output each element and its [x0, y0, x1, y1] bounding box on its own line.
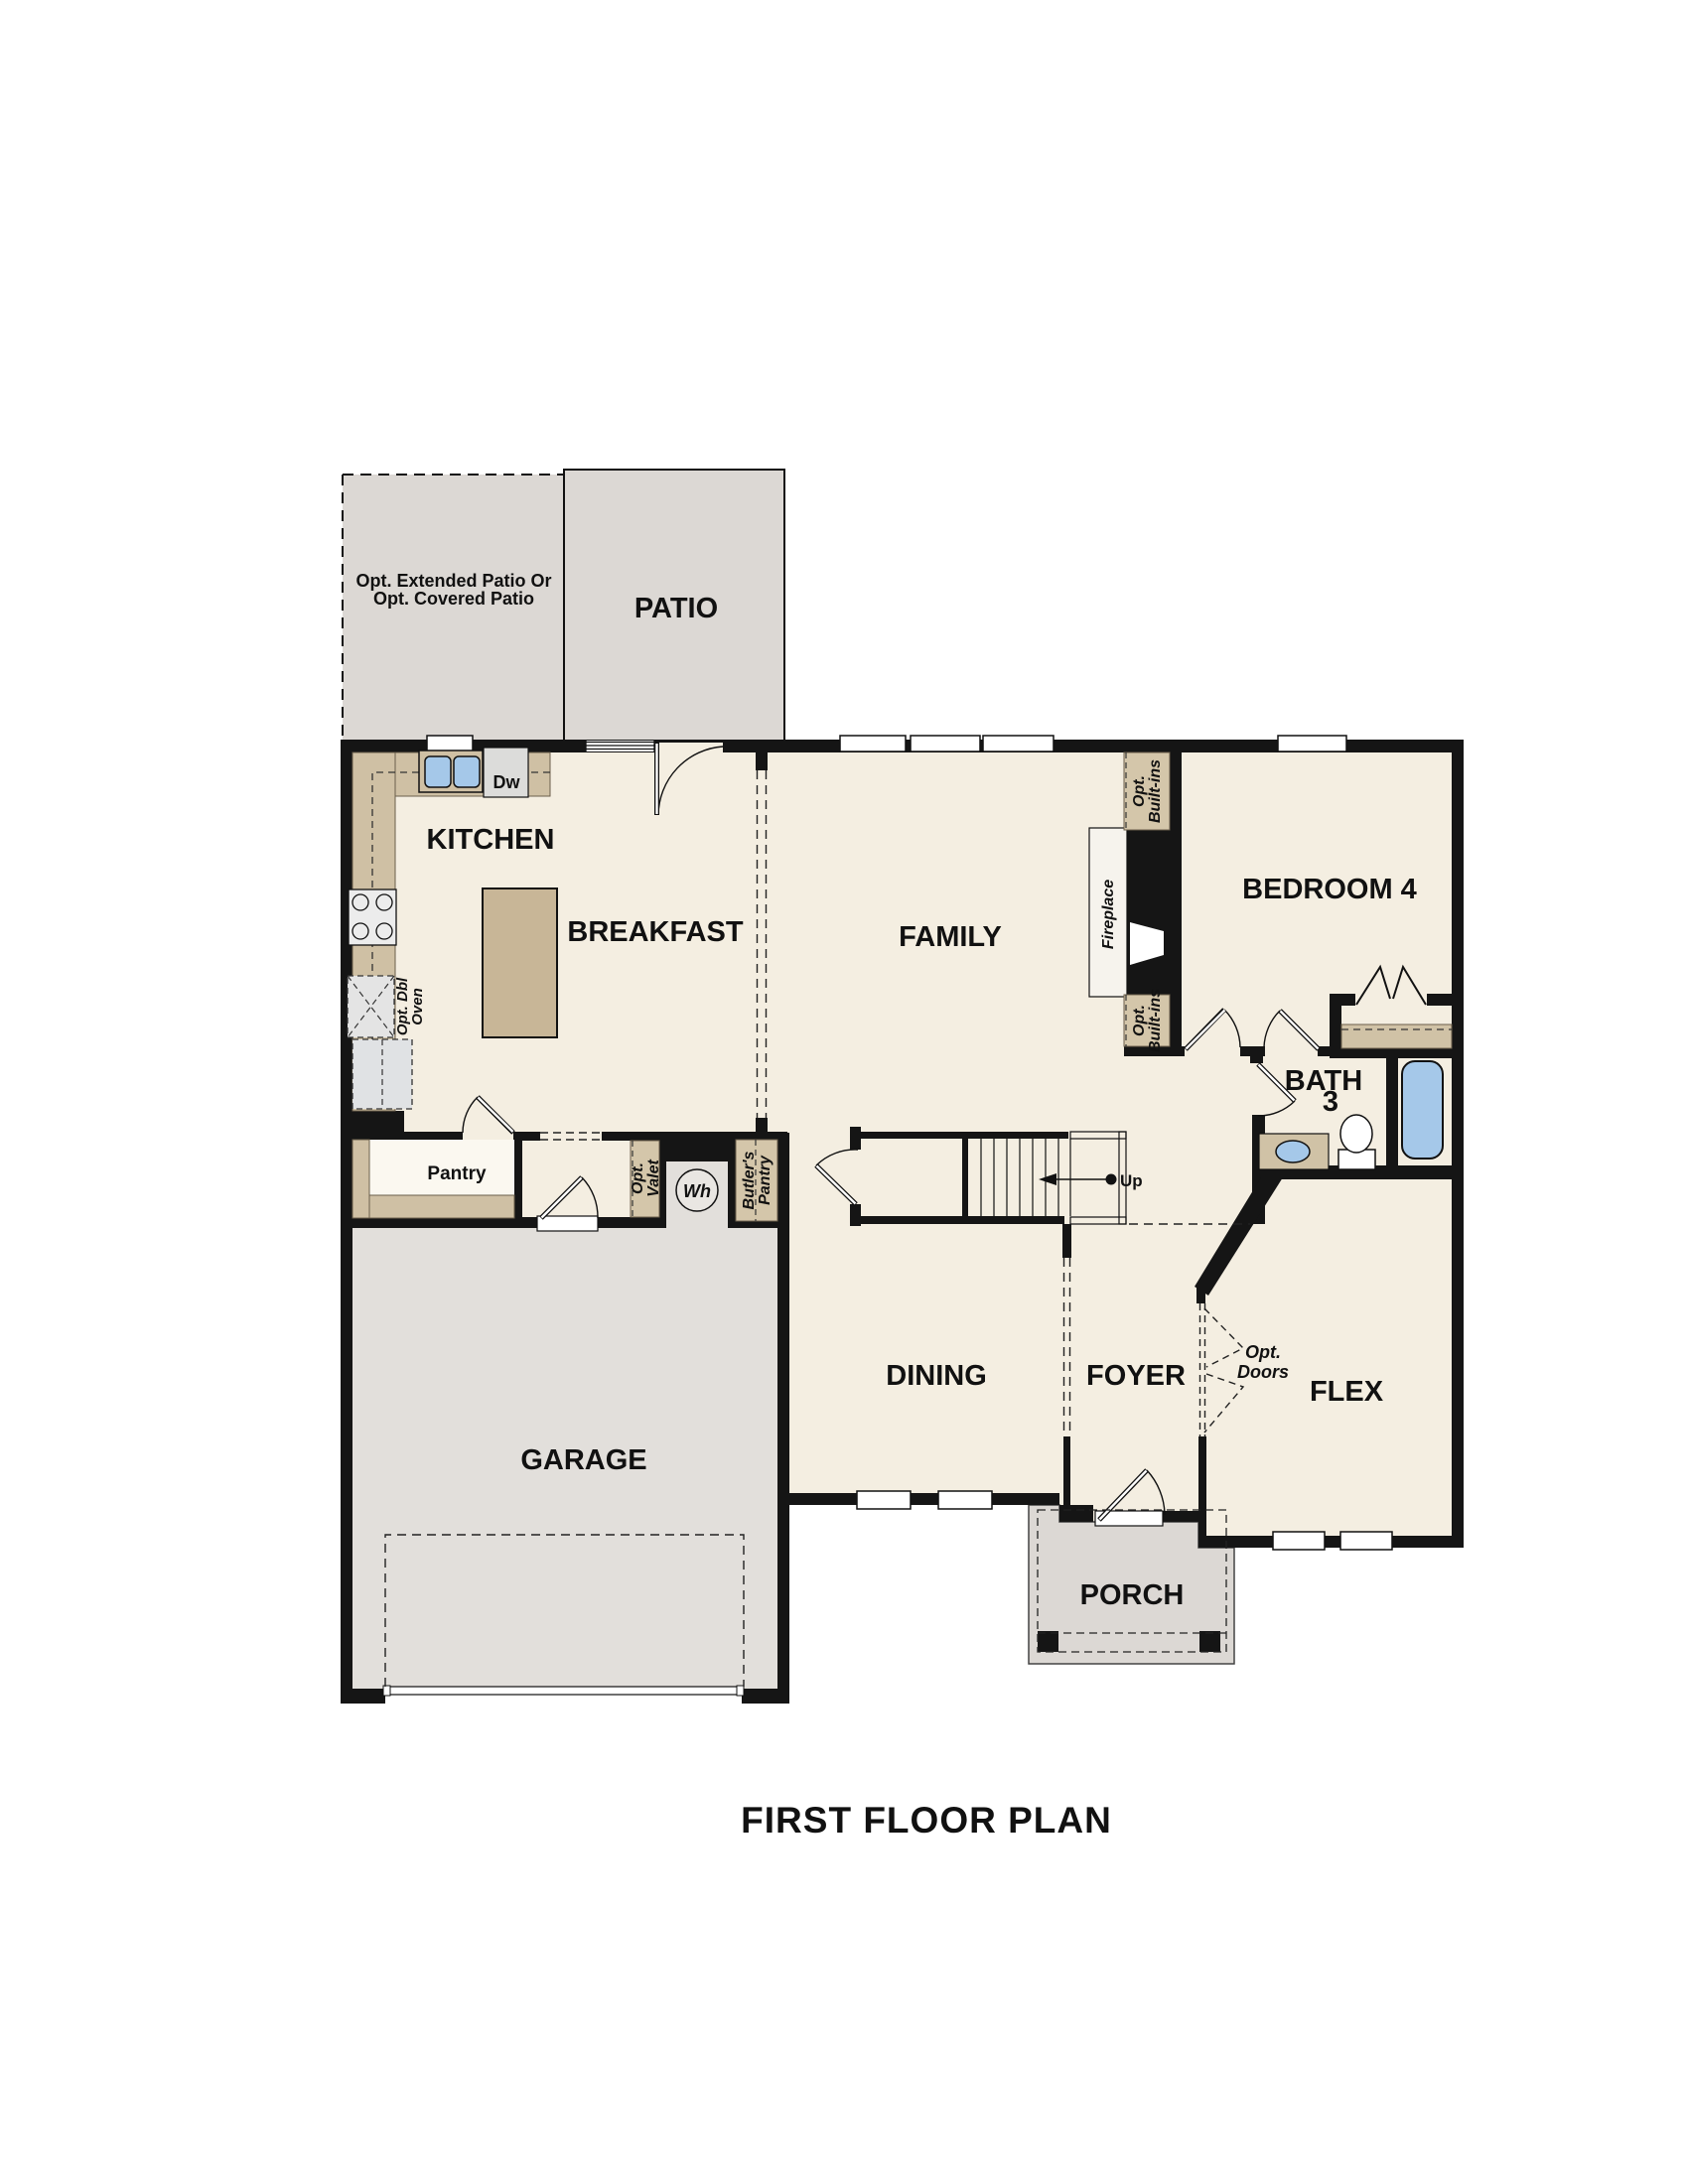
svg-text:BEDROOM 4: BEDROOM 4 — [1242, 874, 1417, 905]
svg-text:Dw: Dw — [493, 772, 521, 792]
svg-text:FLEX: FLEX — [1310, 1376, 1384, 1408]
svg-text:PATIO: PATIO — [634, 593, 718, 624]
svg-text:Opt. Extended Patio Or: Opt. Extended Patio Or — [355, 571, 551, 591]
svg-text:Pantry: Pantry — [427, 1163, 487, 1184]
svg-text:PORCH: PORCH — [1080, 1579, 1185, 1611]
svg-text:3: 3 — [1323, 1086, 1338, 1118]
svg-text:Up: Up — [1120, 1171, 1143, 1190]
svg-text:FIRST FLOOR PLAN: FIRST FLOOR PLAN — [741, 1800, 1112, 1841]
svg-text:Wh: Wh — [683, 1181, 711, 1201]
svg-text:Opt.: Opt. — [1245, 1342, 1281, 1362]
svg-text:KITCHEN: KITCHEN — [427, 824, 555, 856]
svg-text:DINING: DINING — [886, 1360, 987, 1392]
svg-text:GARAGE: GARAGE — [520, 1444, 646, 1476]
svg-text:Opt. Covered Patio: Opt. Covered Patio — [373, 589, 534, 609]
svg-text:BREAKFAST: BREAKFAST — [567, 916, 744, 948]
svg-text:FAMILY: FAMILY — [899, 921, 1002, 953]
svg-text:Doors: Doors — [1237, 1362, 1289, 1382]
svg-text:Opt.Valet: Opt.Valet — [630, 1160, 662, 1197]
svg-text:Fireplace: Fireplace — [1100, 880, 1117, 949]
svg-text:Butler'sPantry: Butler'sPantry — [741, 1151, 774, 1209]
svg-text:FOYER: FOYER — [1086, 1360, 1186, 1392]
